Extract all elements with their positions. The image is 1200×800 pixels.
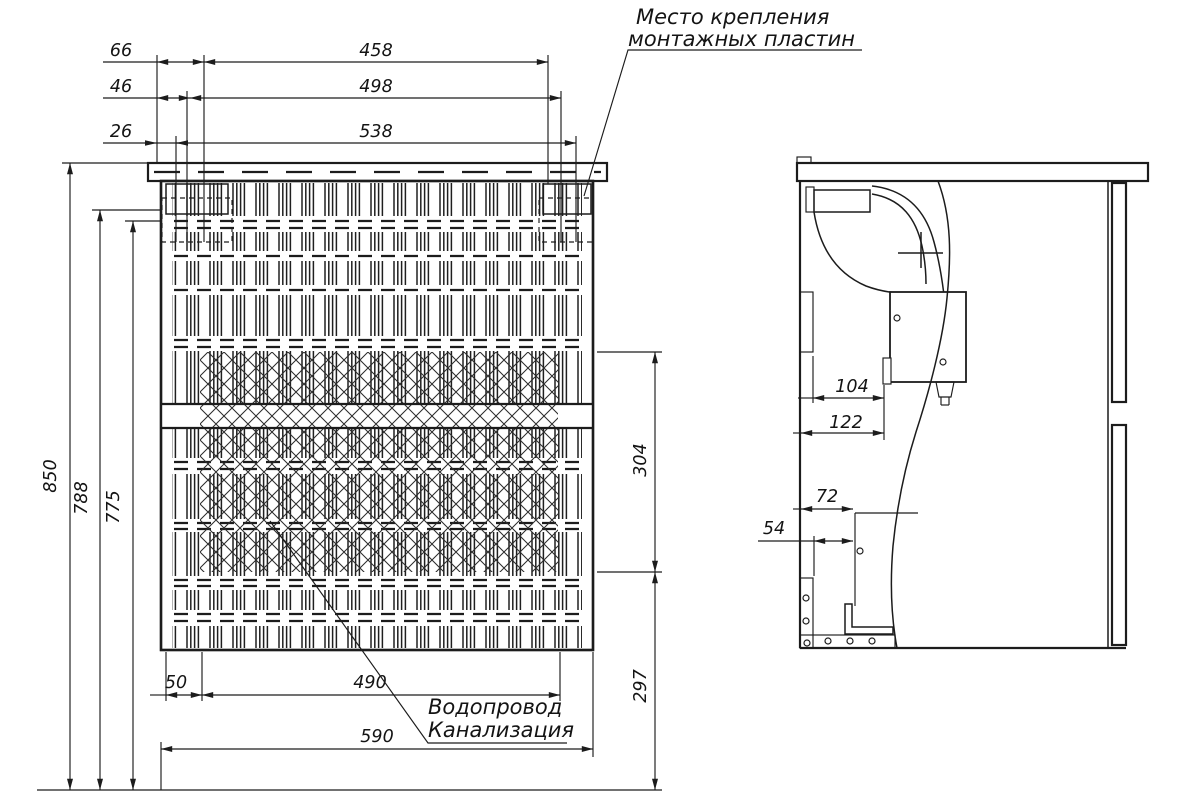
dim-297: 297: [631, 669, 651, 702]
dim-122: 122: [829, 413, 862, 433]
plumbing-note-line2: Канализация: [428, 718, 574, 742]
dim-490: 490: [353, 673, 386, 693]
bottom-angle-bracket: [845, 604, 893, 634]
drawer-gap-band: [162, 404, 592, 428]
dim-72: 72: [816, 487, 838, 507]
siphon-tab: [883, 358, 891, 384]
mounting-note-line1: Место крепления: [636, 5, 829, 29]
dim-66: 66: [110, 41, 132, 61]
dim-538: 538: [359, 122, 392, 142]
wall-hatch-strip-upper: [800, 292, 813, 352]
dim-104: 104: [835, 377, 868, 397]
drain-pipe: [936, 382, 954, 405]
dim-304: 304: [631, 443, 651, 476]
side-view: [797, 157, 1148, 648]
hatch-circles: [803, 595, 875, 646]
countertop-side: [797, 163, 1148, 181]
mounting-note-line2: монтажных пластин: [628, 27, 855, 51]
decorative-crosshatch-region: [200, 352, 558, 572]
dim-54: 54: [763, 519, 785, 539]
dim-788: 788: [72, 481, 92, 514]
wall-hatch-strip-lower: [800, 578, 813, 648]
front-view: [148, 163, 607, 650]
dim-26: 26: [110, 122, 132, 142]
technical-drawing-page: 66 458 46 498 26 538 850 788 775 304 297: [0, 0, 1200, 800]
dim-590: 590: [360, 727, 393, 747]
upper-drawer-front: [1112, 183, 1126, 402]
sink-rim-section: [814, 190, 870, 212]
dim-498: 498: [359, 77, 392, 97]
dim-458: 458: [359, 41, 392, 61]
vanity-cabinet-drawing: 66 458 46 498 26 538 850 788 775 304 297: [0, 0, 1200, 800]
dim-775: 775: [104, 490, 124, 523]
siphon-box: [890, 292, 966, 382]
plumbing-note-line1: Водопровод: [428, 695, 562, 719]
dim-50: 50: [165, 673, 187, 693]
side-dimensions: 104 122 72 54: [758, 356, 884, 576]
lower-drawer-front: [1112, 425, 1126, 645]
dim-850: 850: [41, 459, 61, 492]
sink-rim-bracket: [806, 187, 814, 212]
screw-icon: [857, 548, 863, 554]
dim-46: 46: [110, 77, 132, 97]
